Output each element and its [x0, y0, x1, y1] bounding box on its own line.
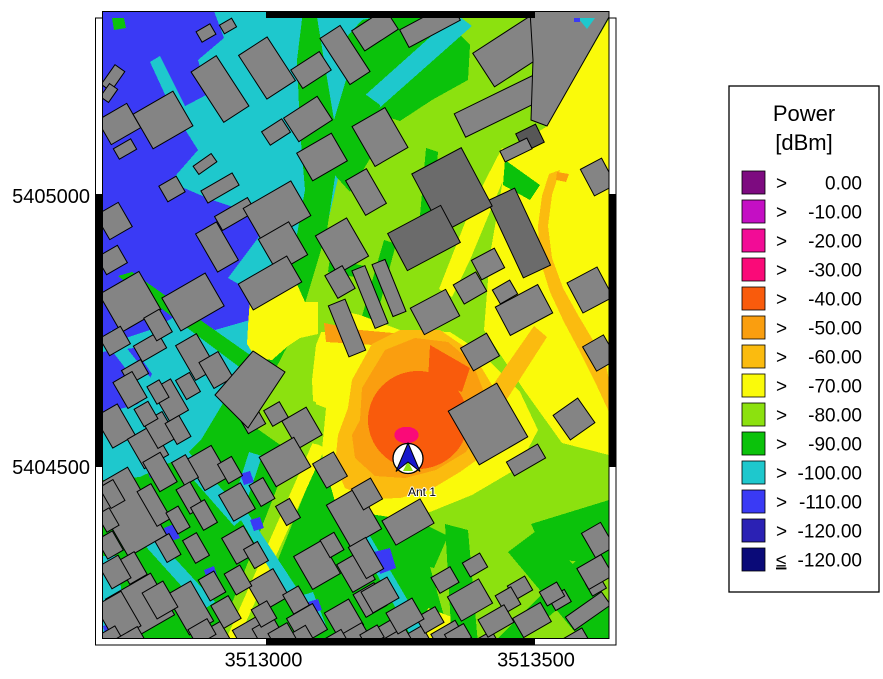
svg-text:[dBm]: [dBm]	[775, 130, 832, 155]
svg-text:3513000: 3513000	[225, 650, 303, 672]
svg-text:-110.00: -110.00	[799, 493, 862, 514]
svg-text:>: >	[776, 261, 787, 282]
svg-text:>: >	[776, 377, 787, 398]
svg-text:>: >	[776, 174, 787, 195]
svg-text:-40.00: -40.00	[808, 290, 862, 311]
svg-text:5405000: 5405000	[12, 186, 90, 208]
svg-text:-60.00: -60.00	[808, 348, 862, 369]
svg-text:>: >	[776, 406, 787, 427]
svg-text:-120.00: -120.00	[798, 522, 862, 543]
svg-text:>: >	[776, 203, 787, 224]
svg-text:>: >	[776, 522, 787, 543]
svg-text:5404500: 5404500	[12, 457, 90, 479]
svg-text:-30.00: -30.00	[808, 261, 862, 282]
svg-text:>: >	[776, 319, 787, 340]
svg-text:-20.00: -20.00	[808, 232, 862, 253]
svg-text:0.00: 0.00	[825, 174, 862, 195]
svg-text:>: >	[776, 348, 787, 369]
svg-text:>: >	[776, 435, 787, 456]
svg-text:>: >	[776, 232, 787, 253]
svg-text:>: >	[776, 493, 787, 514]
svg-text:-80.00: -80.00	[808, 406, 862, 427]
svg-text:>: >	[776, 464, 787, 485]
svg-text:Ant 1: Ant 1	[408, 485, 436, 499]
svg-text:-70.00: -70.00	[808, 377, 862, 398]
svg-text:-50.00: -50.00	[808, 319, 862, 340]
svg-text:-120.00: -120.00	[798, 551, 862, 572]
svg-text:≤: ≤	[776, 551, 786, 572]
svg-text:-10.00: -10.00	[808, 203, 862, 224]
svg-text:Power: Power	[773, 101, 835, 126]
svg-text:-90.00: -90.00	[808, 435, 862, 456]
svg-text:>: >	[776, 290, 787, 311]
svg-text:3513500: 3513500	[497, 650, 575, 672]
svg-text:-100.00: -100.00	[798, 464, 862, 485]
